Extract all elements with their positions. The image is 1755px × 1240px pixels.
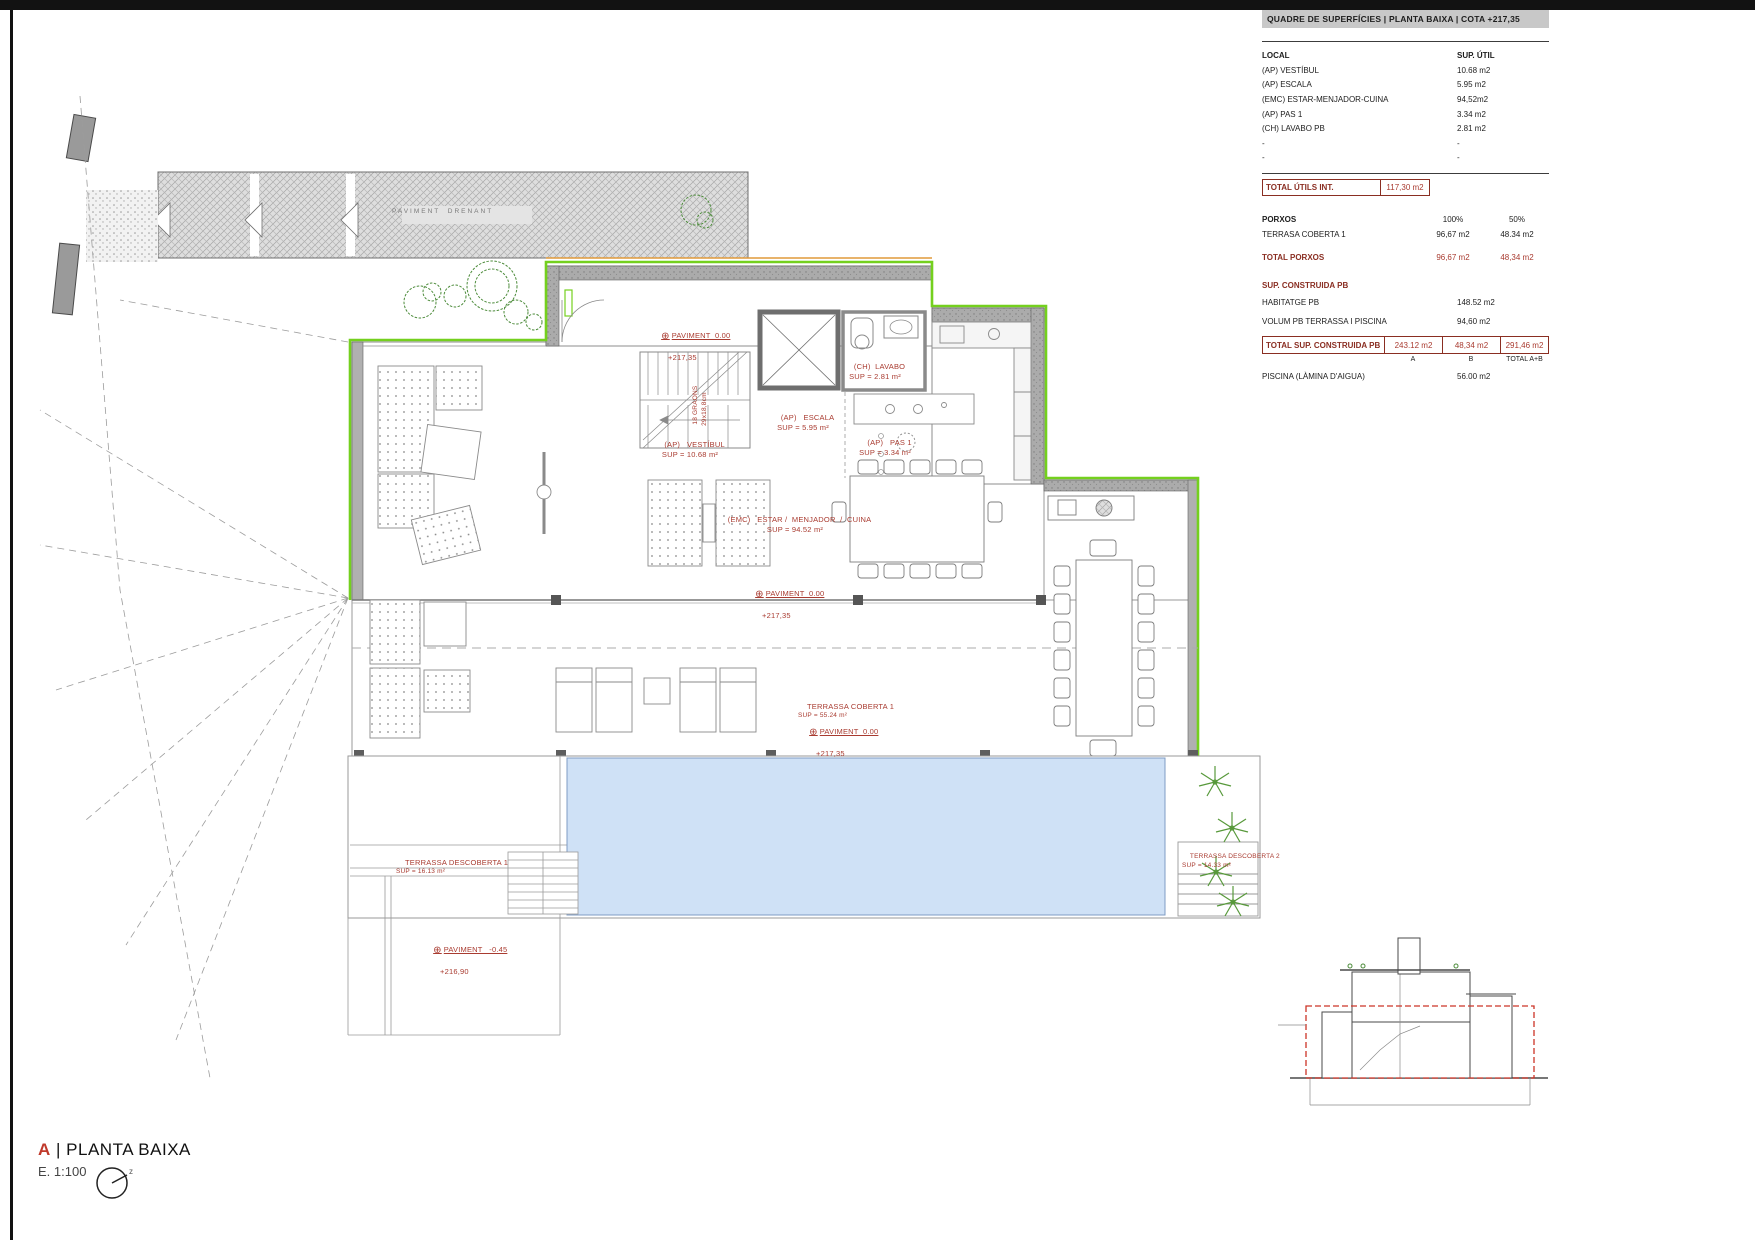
plan-title: A | PLANTA BAIXA: [38, 1140, 191, 1160]
total-construida-box: TOTAL SUP. CONSTRUIDA PB 243.12 m2 48,34…: [1262, 336, 1549, 354]
col-local: LOCAL: [1262, 51, 1457, 60]
total-utils-box: TOTAL ÚTILS INT. 117,30 m2: [1262, 179, 1430, 196]
level-marker-icon: [809, 727, 820, 736]
title-separator: |: [56, 1140, 66, 1159]
terrassa-descoberta-1-label: TERRASSA DESCOBERTA 1SUP = 16.13 m²: [396, 848, 508, 895]
piscina-row: PISCINA (LÀMINA D'AIGUA) 56.00 m2: [1262, 369, 1549, 384]
table-row: (EMC) ESTAR-MENJADOR-CUINA94,52m2: [1262, 92, 1549, 107]
level-marker-icon: [661, 331, 672, 340]
pas-label: (AP) PAS 1SUP = 3.34 m²: [840, 428, 930, 477]
table-row: (AP) VESTÍBUL10.68 m2: [1262, 63, 1549, 78]
title-block: A | PLANTA BAIXA E. 1:100: [38, 1140, 191, 1179]
level-marker-icon: [433, 945, 444, 954]
total-utils-value: 117,30 m2: [1381, 180, 1429, 195]
table-header-row: LOCAL SUP. ÚTIL: [1262, 47, 1549, 63]
sup-construida-header: SUP. CONSTRUIDA PB: [1262, 277, 1549, 293]
paviment-drenant-label: PAVIMENT DRENANT: [392, 208, 493, 216]
table-row: (AP) PAS 13.34 m2: [1262, 107, 1549, 122]
drawing-sheet: PAVIMENT DRENANT PAVIMENT 0.00 +217,35 (…: [0, 0, 1755, 1240]
paviment-main-label: PAVIMENT 0.00 +217,35: [746, 578, 824, 640]
porxos-row: TERRASA COBERTA 1 96,67 m2 48.34 m2: [1262, 227, 1549, 242]
divider: [1262, 41, 1549, 42]
stipple-ground: [86, 190, 158, 262]
section-thumbnail: [1278, 938, 1548, 1105]
divider: [1262, 173, 1549, 174]
plan-letter: A: [38, 1140, 51, 1159]
level-marker-icon: [755, 589, 766, 598]
total-utils-label: TOTAL ÚTILS INT.: [1263, 180, 1381, 195]
table-row: --: [1262, 151, 1549, 166]
estar-menjador-cuina-label: (EMC) ESTAR / MENJADOR / CUINASUP = 94.5…: [695, 505, 895, 554]
surface-table-panel: QUADRE DE SUPERFÍCIES | PLANTA BAIXA | C…: [1262, 10, 1549, 384]
table-row: (AP) ESCALA5.95 m2: [1262, 78, 1549, 93]
north-label: z: [129, 1167, 133, 1176]
lavabo-label: (CH) LAVABOSUP = 2.81 m²: [820, 352, 930, 401]
plan-scale: E. 1:100: [38, 1164, 191, 1179]
swimming-pool: [567, 758, 1165, 915]
paviment-terrassa-label: PAVIMENT 0.00 +217,35: [800, 716, 878, 778]
pool-steps: [508, 852, 578, 914]
plan-name: PLANTA BAIXA: [66, 1140, 191, 1159]
vestibul-label: (AP) VESTÍBULSUP = 10.68 m²: [630, 430, 750, 479]
porxos-header-row: PORXOS 100% 50%: [1262, 212, 1549, 227]
construida-row: HABITATGE PB 148.52 m2: [1262, 293, 1549, 312]
col-sup-util: SUP. ÚTIL: [1457, 51, 1549, 60]
column-notes-row: A B TOTAL A+B: [1262, 354, 1549, 365]
terrassa-descoberta-2-label: TERRASSA DESCOBERTA 2SUP = 14.33 m²: [1182, 845, 1280, 887]
table-row: --: [1262, 136, 1549, 151]
table-row: (CH) LAVABO PB2.81 m2: [1262, 121, 1549, 136]
total-porxos-row: TOTAL PORXOS 96,67 m2 48,34 m2: [1262, 250, 1549, 265]
construida-row: VOLUM PB TERRASSA I PISCINA 94,60 m2: [1262, 312, 1549, 331]
paviment-pool-label: PAVIMENT -0.45 +216,90: [424, 934, 507, 996]
surface-table-title: QUADRE DE SUPERFÍCIES | PLANTA BAIXA | C…: [1262, 10, 1549, 28]
